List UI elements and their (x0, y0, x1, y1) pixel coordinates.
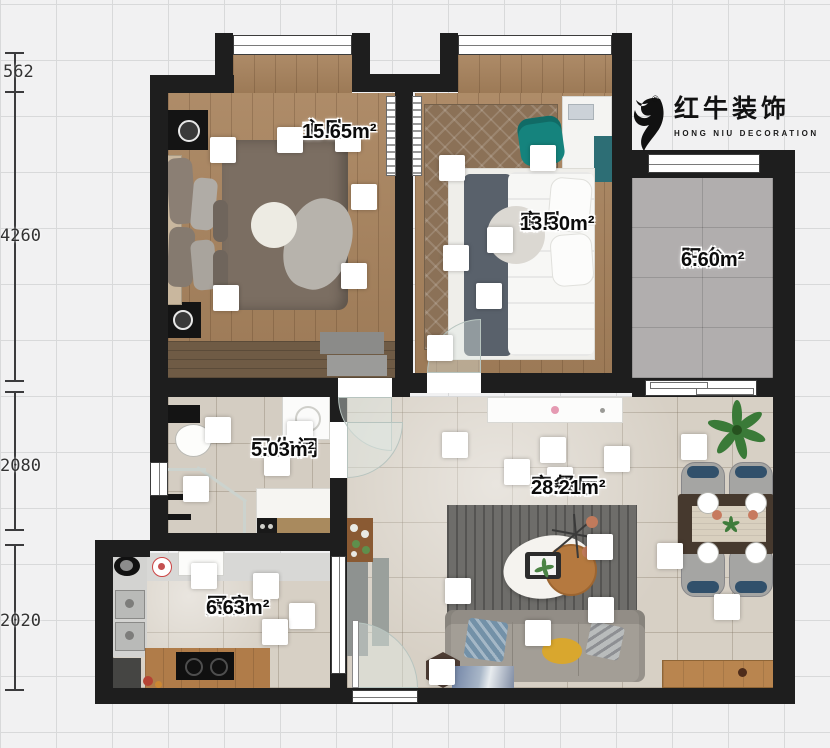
registered-mark: ® (652, 94, 659, 104)
floor-balcony (632, 178, 773, 378)
ceiling-light-marker (213, 285, 239, 311)
bowl-icon (712, 510, 722, 520)
entry-door-mat (452, 666, 514, 690)
ceiling-light-marker (530, 145, 556, 171)
door-opening (330, 422, 347, 478)
bowl-icon (748, 510, 758, 520)
brand-name: 红牛装饰 (674, 96, 819, 124)
sink-basin-icon (120, 560, 133, 571)
ceiling-light-marker (262, 619, 288, 645)
ceiling-light-marker (205, 417, 231, 443)
dimension-tick (5, 689, 24, 691)
bathroom-vanity (168, 405, 200, 423)
dimension-tick (5, 91, 24, 93)
sink-knob-icon (260, 524, 265, 529)
laptop-icon (568, 104, 594, 120)
ceiling-light-marker (253, 573, 279, 599)
entry-door-leaf (352, 620, 359, 688)
dimension-tick (5, 52, 24, 54)
ceiling-light-marker (525, 620, 551, 646)
ceiling-light-marker (341, 263, 367, 289)
wall (215, 33, 233, 92)
ceiling-light-marker (657, 543, 683, 569)
ceiling-light-marker (427, 335, 453, 361)
ceiling-light-marker (587, 534, 613, 560)
wall (150, 533, 330, 551)
window (233, 35, 352, 55)
kitchen-cabinet-dark (113, 658, 141, 688)
floorplan-canvas: 562 4260 2080 2020 ® 红牛装饰 HONG NIU DECOR… (0, 0, 830, 748)
mini-plant-icon (722, 516, 740, 534)
ceiling-light-marker (191, 563, 217, 589)
door-opening (427, 373, 481, 393)
ceiling-light-marker (445, 578, 471, 604)
burner-icon (185, 658, 203, 676)
ceiling-light-marker (183, 476, 209, 502)
master-floor-mat (320, 332, 384, 354)
master-floor-mat (327, 355, 387, 376)
decor-dot (551, 406, 559, 414)
wall (440, 33, 458, 92)
wall (773, 150, 795, 704)
mini-plant-icon (534, 558, 554, 578)
desk-cabinet (594, 136, 612, 182)
radiator-icon (412, 96, 422, 176)
ceiling-light-marker (487, 227, 513, 253)
sliding-panel (696, 388, 754, 395)
place-setting-icon (697, 542, 719, 564)
appliance-knob-icon (125, 599, 134, 608)
table-lamp-icon (178, 120, 200, 142)
dimension-tick (5, 391, 24, 393)
wall (95, 540, 113, 704)
floor-master-bay (233, 53, 352, 93)
ceiling-light-marker (604, 446, 630, 472)
sink-knob-icon (268, 524, 273, 529)
kitchen-small-item (143, 676, 153, 686)
brand-subtitle: HONG NIU DECORATION (674, 129, 819, 138)
radiator-icon (386, 96, 396, 176)
dimension-tick (5, 529, 24, 531)
ceiling-light-marker (429, 659, 455, 685)
ceiling-light-marker (476, 283, 502, 309)
dimension-label: 2020 (0, 611, 41, 631)
ceiling-light-marker (714, 594, 740, 620)
potted-plant-icon (704, 400, 770, 460)
ceiling-light-marker (277, 127, 303, 153)
dimension-tick (5, 544, 24, 546)
ceiling-light-marker (540, 437, 566, 463)
pillow (213, 250, 228, 290)
sofa-pillow-gray (585, 621, 625, 661)
burner-icon (210, 658, 228, 676)
pillow (213, 200, 228, 242)
decor-dot (600, 408, 605, 413)
dimension-label: 562 (3, 62, 34, 82)
wall (95, 688, 795, 704)
bull-icon (630, 96, 668, 152)
plate-food-icon (158, 563, 165, 570)
window (648, 154, 760, 173)
place-setting-icon (745, 542, 767, 564)
ceiling-light-marker (210, 137, 236, 163)
brand-logo: ® 红牛装饰 HONG NIU DECORATION (630, 96, 819, 152)
ceiling-light-marker (504, 459, 530, 485)
ceiling-light-marker (442, 432, 468, 458)
ceiling-light-marker (681, 434, 707, 460)
floor-guest-bay (458, 53, 612, 93)
ceiling-light-marker (443, 245, 469, 271)
appliance-knob-icon (125, 631, 134, 640)
ceiling-light-marker (439, 155, 465, 181)
wall (395, 92, 413, 378)
ceiling-light-marker (588, 597, 614, 623)
ceiling-light-marker (289, 603, 315, 629)
flowers-icon (346, 520, 374, 560)
bowl-icon (738, 668, 747, 677)
door-opening (338, 378, 392, 397)
kitchen-small-item (155, 681, 162, 688)
dimension-label: 2080 (0, 456, 41, 476)
table-lamp-icon (173, 310, 193, 330)
window (150, 462, 168, 496)
dimension-label: 4260 (0, 226, 41, 246)
round-cushion (251, 202, 297, 248)
kitchen-sliding-door (331, 556, 346, 674)
dimension-tick (5, 380, 24, 382)
ceiling-light-marker (351, 184, 377, 210)
entry-threshold (352, 690, 418, 703)
window (458, 35, 612, 55)
sliding-door (645, 380, 757, 396)
wall (612, 33, 632, 378)
sideboard (662, 660, 774, 688)
sofa-pillow-patterned (463, 617, 508, 662)
pillow (549, 233, 595, 288)
